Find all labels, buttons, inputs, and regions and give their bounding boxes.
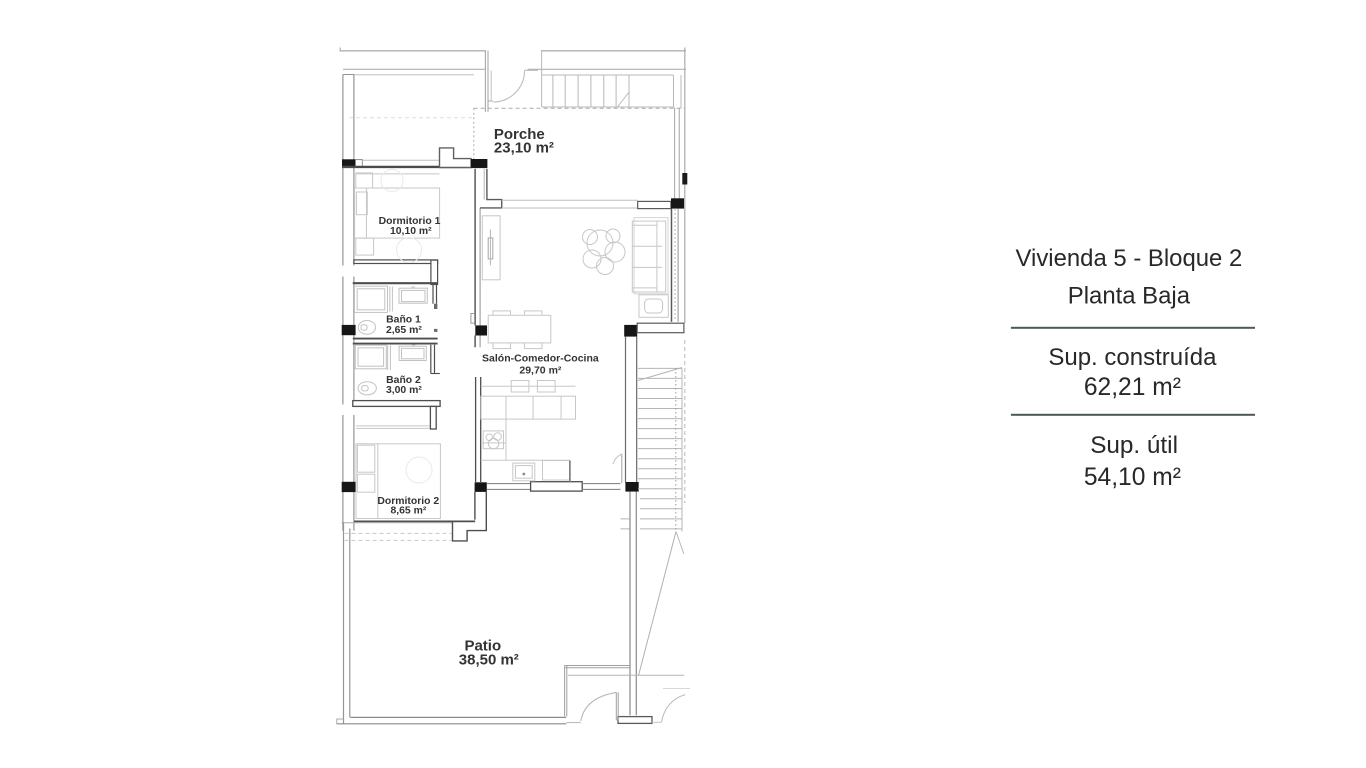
svg-text:3,00 m²: 3,00 m²	[386, 385, 422, 396]
svg-text:54,10 m²: 54,10 m²	[1084, 464, 1181, 491]
svg-text:Planta Baja: Planta Baja	[1068, 282, 1191, 309]
svg-text:Baño 1: Baño 1	[386, 315, 421, 326]
svg-text:62,21 m²: 62,21 m²	[1084, 374, 1181, 401]
svg-text:2,65 m²: 2,65 m²	[386, 325, 422, 336]
svg-text:10,10 m²: 10,10 m²	[390, 226, 432, 237]
svg-text:Sup. útil: Sup. útil	[1090, 432, 1178, 459]
svg-text:29,70 m²: 29,70 m²	[519, 364, 562, 376]
svg-text:38,50 m²: 38,50 m²	[459, 651, 519, 668]
svg-text:Sup. construída: Sup. construída	[1048, 344, 1217, 371]
svg-text:Salón-Comedor-Cocina: Salón-Comedor-Cocina	[482, 353, 599, 365]
svg-text:Vivienda 5 - Bloque 2: Vivienda 5 - Bloque 2	[1016, 245, 1243, 272]
svg-text:Dormitorio 1: Dormitorio 1	[379, 216, 441, 227]
svg-text:8,65 m²: 8,65 m²	[390, 506, 426, 517]
svg-text:23,10 m²: 23,10 m²	[494, 139, 554, 156]
